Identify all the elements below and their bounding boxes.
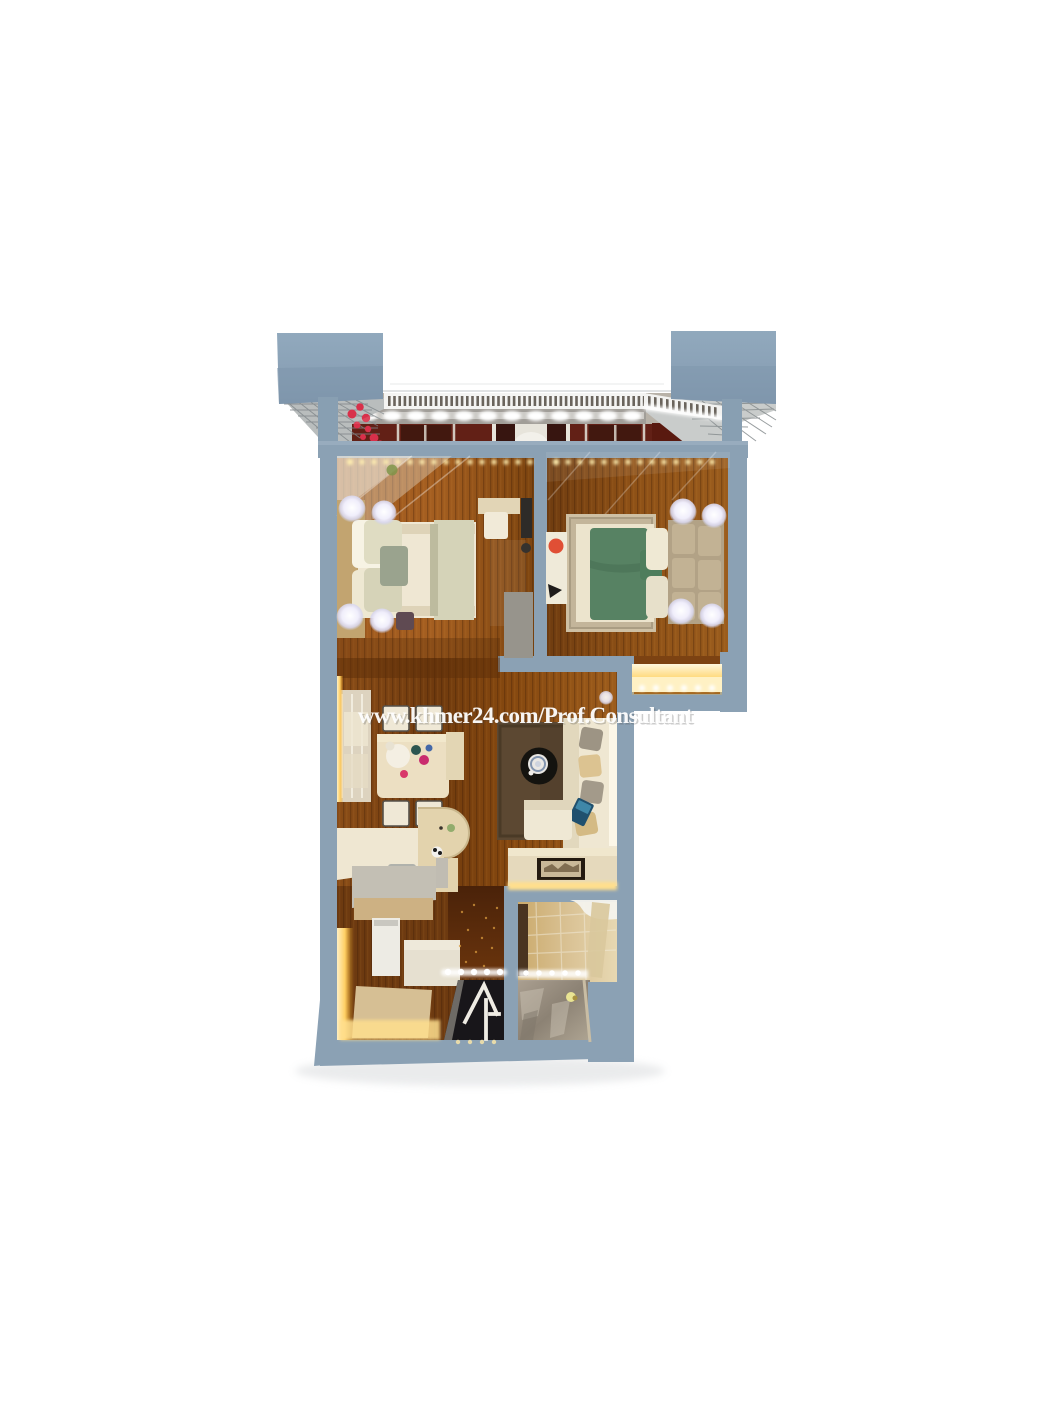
svg-text:www.khmer24.com/Prof.Consultan: www.khmer24.com/Prof.Consultant: [358, 703, 693, 728]
